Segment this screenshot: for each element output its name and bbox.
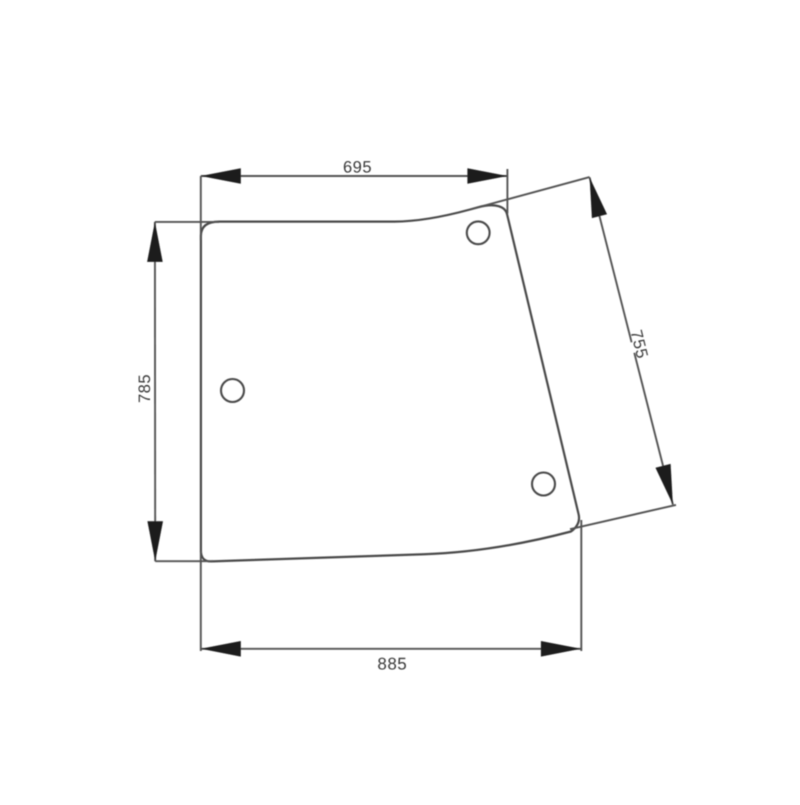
svg-text:885: 885 [377,654,407,673]
svg-text:785: 785 [136,374,154,403]
svg-text:695: 695 [343,158,372,176]
